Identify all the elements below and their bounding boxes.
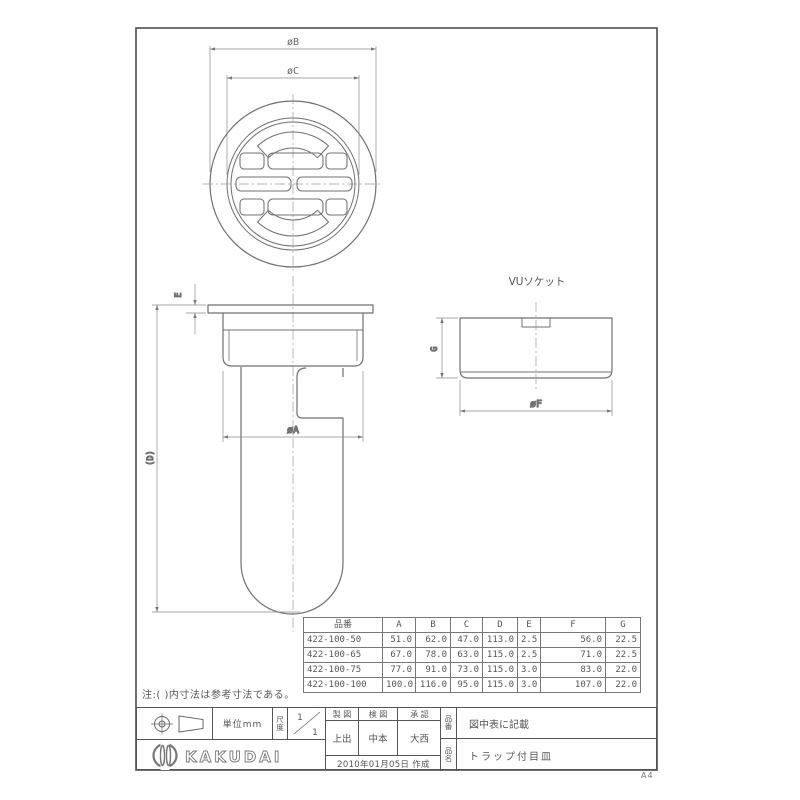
creation-date: 2010年01月05日 作成 (337, 758, 430, 770)
dim-e (186, 284, 206, 334)
drawing-sheet: øB øC E ( (0, 0, 800, 800)
spec-cell: 77.0 (383, 663, 416, 678)
spec-cell: 2.5 (518, 633, 541, 648)
date-cell: 2010年01月05日 作成 (326, 756, 441, 771)
draft-header: 製 図 (333, 709, 352, 720)
spec-table-row: 422-100-50 51.0 62.0 47.0 113.0 2.5 56.0… (304, 633, 641, 648)
spec-header-g: G (606, 618, 641, 633)
spec-header-b: B (416, 618, 451, 633)
scale-label: 尺度 (274, 716, 287, 732)
spec-table: 品番 A B C D E F G 422-100-50 51.0 62.0 47… (303, 617, 641, 693)
spec-cell: 22.5 (606, 633, 641, 648)
spec-cell: 56.0 (541, 633, 606, 648)
spec-cell: 78.0 (416, 648, 451, 663)
spec-cell: 51.0 (383, 633, 416, 648)
title-block: 単位mm 尺度 1 1 KAKUDAI (136, 707, 657, 770)
part-name-value: トラップ付目皿 (469, 748, 553, 763)
spec-cell: 83.0 (541, 663, 606, 678)
dim-label-f: øF (530, 399, 542, 410)
spec-cell: 22.0 (606, 663, 641, 678)
spec-cell: 116.0 (416, 678, 451, 693)
spec-cell: 115.0 (483, 648, 518, 663)
spec-cell-part-no: 422-100-50 (304, 633, 383, 648)
spec-cell: 3.0 (518, 663, 541, 678)
part-no-value: 図中表に記載 (469, 716, 529, 731)
unit-label: 単位mm (223, 717, 263, 730)
approve-name: 大西 (410, 731, 429, 745)
draft-header-cell: 製 図 (326, 708, 359, 721)
part-no-label: 品番 (442, 715, 455, 731)
dim-d (152, 305, 300, 612)
approve-header: 承 認 (410, 709, 429, 720)
kakudai-wordmark: KAKUDAI (185, 748, 282, 766)
socket-view: VUソケット G øF (430, 276, 612, 416)
top-view: øB øC (203, 37, 383, 274)
spec-table-row: 422-100-100 100.0 116.0 95.0 115.0 3.0 1… (304, 678, 641, 693)
dim-label-g: G (430, 346, 440, 351)
spec-table-row: 422-100-65 67.0 78.0 63.0 115.0 2.5 71.0… (304, 648, 641, 663)
part-no-label-cell: 品番 (441, 708, 457, 739)
spec-cell: 100.0 (383, 678, 416, 693)
check-name-cell: 中本 (359, 721, 398, 756)
spec-header-f: F (541, 618, 606, 633)
spec-cell: 71.0 (541, 648, 606, 663)
dim-label-a: øA (287, 425, 299, 436)
front-view: E (D) øA (146, 276, 373, 632)
scale-cell: 尺度 1 1 (273, 708, 326, 739)
dim-label-e: E (174, 292, 184, 297)
approve-name-cell: 大西 (398, 721, 441, 756)
projection-symbol-cell (137, 708, 213, 739)
part-name-value-cell: トラップ付目皿 (457, 739, 657, 771)
spec-cell: 62.0 (416, 633, 451, 648)
spec-cell: 2.5 (518, 648, 541, 663)
spec-cell: 73.0 (451, 663, 483, 678)
logo-cell: KAKUDAI (137, 739, 326, 770)
spec-cell: 47.0 (451, 633, 483, 648)
staff-grid: 製 図 検 図 承 認 上出 中本 大西 2010年01月05日 作成 (326, 708, 441, 771)
spec-cell: 22.0 (606, 678, 641, 693)
kakudai-logomark-icon (153, 741, 176, 770)
spec-cell: 63.0 (451, 648, 483, 663)
spec-cell-part-no: 422-100-100 (304, 678, 383, 693)
trap-tube-outline (241, 367, 343, 614)
reference-note: 注:( )内寸法は参考寸法である。 (142, 686, 295, 701)
spec-cell: 115.0 (483, 678, 518, 693)
spec-cell: 107.0 (541, 678, 606, 693)
scale-denominator: 1 (312, 728, 318, 738)
spec-cell-part-no: 422-100-65 (304, 648, 383, 663)
spec-header-d: D (483, 618, 518, 633)
draft-name: 上出 (332, 731, 351, 745)
spec-cell: 113.0 (483, 633, 518, 648)
part-no-value-cell: 図中表に記載 (457, 708, 657, 739)
sheet-size-label: A4 (641, 771, 654, 780)
scale-fraction: 1 1 (289, 708, 325, 738)
third-angle-projection-icon (138, 709, 212, 739)
scale-numerator: 1 (297, 713, 303, 723)
check-header-cell: 検 図 (359, 708, 398, 721)
draft-name-cell: 上出 (326, 721, 359, 756)
spec-table-header-row: 品番 A B C D E F G (304, 618, 641, 633)
spec-cell: 115.0 (483, 663, 518, 678)
scale-label-cell: 尺度 (273, 708, 288, 739)
dim-label-diameter-c: øC (287, 66, 299, 77)
spec-cell: 67.0 (383, 648, 416, 663)
spec-header-part-no: 品番 (304, 618, 383, 633)
top-view-centerlines (203, 94, 383, 274)
part-name-label-cell: 品名 (441, 739, 457, 771)
spec-header-c: C (451, 618, 483, 633)
unit-cell: 単位mm (213, 708, 273, 739)
part-name-label: 品名 (442, 747, 455, 763)
spec-table-row: 422-100-75 77.0 91.0 73.0 115.0 3.0 83.0… (304, 663, 641, 678)
spec-header-e: E (518, 618, 541, 633)
socket-view-title: VUソケット (509, 276, 566, 288)
spec-cell-part-no: 422-100-75 (304, 663, 383, 678)
spec-cell: 22.5 (606, 648, 641, 663)
spec-cell: 91.0 (416, 663, 451, 678)
flange-profile (208, 305, 373, 313)
dim-label-diameter-b: øB (287, 37, 299, 48)
part-info: 品番 図中表に記載 品名 トラップ付目皿 (441, 708, 657, 771)
kakudai-logo: KAKUDAI (139, 741, 324, 770)
check-name: 中本 (368, 731, 387, 745)
check-header: 検 図 (369, 709, 388, 720)
dim-label-d: (D) (146, 450, 156, 465)
spec-header-a: A (383, 618, 416, 633)
spec-cell: 95.0 (451, 678, 483, 693)
spec-cell: 3.0 (518, 678, 541, 693)
dim-f (460, 380, 612, 416)
approve-header-cell: 承 認 (398, 708, 441, 721)
